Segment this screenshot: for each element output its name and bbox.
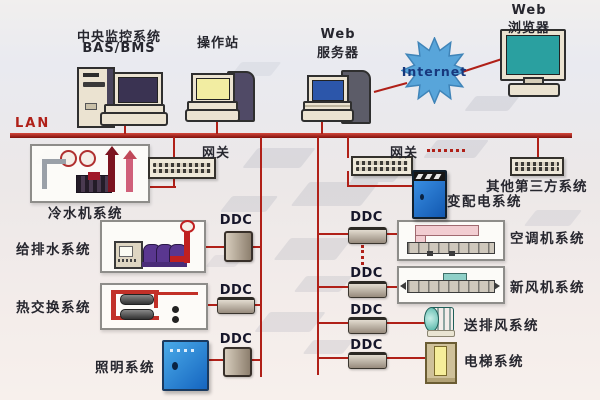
- water-system-box: [100, 220, 206, 273]
- wire: [347, 137, 349, 158]
- pump-base-icon: [142, 262, 187, 267]
- lan-label: LAN: [15, 116, 50, 131]
- dotted-continuation: [361, 245, 364, 265]
- duct-icon: [415, 225, 479, 236]
- lighting-system-label: 照明系统: [95, 356, 155, 376]
- lighting-panel-icon: [162, 340, 209, 391]
- ddc-label: DDC: [218, 332, 254, 347]
- fresh-air-box: [397, 266, 505, 304]
- elevator-system-label: 电梯系统: [464, 350, 524, 370]
- web-browser-label: Web: [496, 3, 562, 18]
- dotted-leader: [427, 149, 465, 152]
- internet-label: Internet: [401, 64, 468, 79]
- third-party-label: 其他第三方系统: [486, 175, 588, 195]
- ddc-controller: [217, 297, 255, 314]
- pump-dot-icon: [172, 306, 179, 313]
- crt-monitor-icon: [113, 72, 163, 108]
- elevator-icon: [425, 342, 457, 384]
- ddc-label: DDC: [218, 213, 254, 228]
- fan-system-label: 送排风系统: [464, 314, 539, 334]
- background-stroke: [220, 196, 279, 212]
- arrow-up-icon: [123, 150, 137, 159]
- heat-exchange-box: [100, 283, 208, 330]
- computer-base-icon: [185, 109, 240, 122]
- ddc-label: DDC: [348, 303, 385, 318]
- ddc-controller: [223, 347, 252, 377]
- chiller-system-label: 冷水机系统: [48, 202, 123, 222]
- heat-exchanger-icon: [120, 309, 154, 320]
- gateway-left-label: 网关: [202, 142, 230, 161]
- background-stroke: [294, 276, 353, 292]
- ddc-label: DDC: [348, 210, 385, 225]
- monitor-icon: [500, 29, 566, 81]
- gateway-right-label: 网关: [390, 142, 418, 161]
- operator-station-label: 操作站: [185, 32, 251, 51]
- computer-base-icon: [301, 109, 354, 122]
- wire: [173, 137, 175, 158]
- pipe-icon: [42, 159, 66, 164]
- background-stroke: [273, 238, 352, 260]
- pipe-icon: [170, 256, 186, 262]
- lan-bus: [10, 133, 572, 138]
- arrow-icon: [400, 282, 406, 290]
- ddc-label: DDC: [348, 338, 385, 353]
- ddc-controller: [348, 281, 387, 298]
- control-panel-icon: [114, 241, 143, 269]
- ddc-controller: [348, 317, 387, 334]
- web-server-sublabel: 服务器: [306, 42, 370, 61]
- ahu-unit-icon: [407, 280, 495, 293]
- pipe-icon: [154, 290, 158, 308]
- ddc-controller: [348, 227, 387, 244]
- ac-system-box: [397, 220, 505, 261]
- leg-icon: [427, 251, 433, 256]
- web-browser-sublabel: 浏览器: [496, 17, 562, 36]
- pipe-icon: [126, 158, 133, 192]
- ac-system-label: 空调机系统: [510, 227, 585, 247]
- heat-exchange-label: 热交换系统: [16, 296, 91, 316]
- right-ddc-bus: [317, 137, 319, 375]
- fan-icon: [424, 307, 454, 337]
- ddc-label: DDC: [348, 266, 385, 281]
- arrow-icon: [494, 282, 500, 290]
- valve-wheel-icon: [180, 220, 195, 233]
- third-party-device: [510, 157, 564, 176]
- ddc-controller: [348, 352, 387, 369]
- arrow-up-icon: [105, 146, 119, 155]
- chiller-system-box: [30, 144, 150, 203]
- wire: [349, 185, 413, 187]
- middle-ddc-bus: [260, 137, 262, 377]
- leg-icon: [449, 251, 455, 256]
- heat-exchanger-icon: [120, 294, 154, 305]
- background-stroke: [303, 340, 354, 354]
- water-system-label: 给排水系统: [16, 238, 91, 258]
- web-server-label: Web: [306, 27, 370, 42]
- pump-dot-icon: [172, 316, 179, 323]
- background-stroke: [254, 312, 326, 332]
- ddc-controller: [224, 231, 253, 262]
- wire: [537, 137, 539, 158]
- fresh-air-label: 新风机系统: [510, 276, 585, 296]
- power-cabinet-icon: [412, 170, 447, 219]
- central-station-sublabel: BAS/BMS: [64, 41, 174, 56]
- pipe-icon: [154, 292, 198, 295]
- background-stroke: [524, 210, 583, 226]
- pipe-icon: [108, 154, 115, 192]
- background-stroke: [242, 148, 316, 168]
- monitor-base-icon: [508, 83, 560, 97]
- computer-base-icon: [100, 112, 168, 126]
- pump-icon: [88, 172, 100, 180]
- wire: [150, 186, 176, 188]
- ddc-label: DDC: [218, 283, 254, 298]
- valve-icon: [79, 150, 96, 167]
- bas-network-diagram: 中央监控系统 BAS/BMS 操作站 Web 服务器 Web 浏览器: [0, 0, 600, 400]
